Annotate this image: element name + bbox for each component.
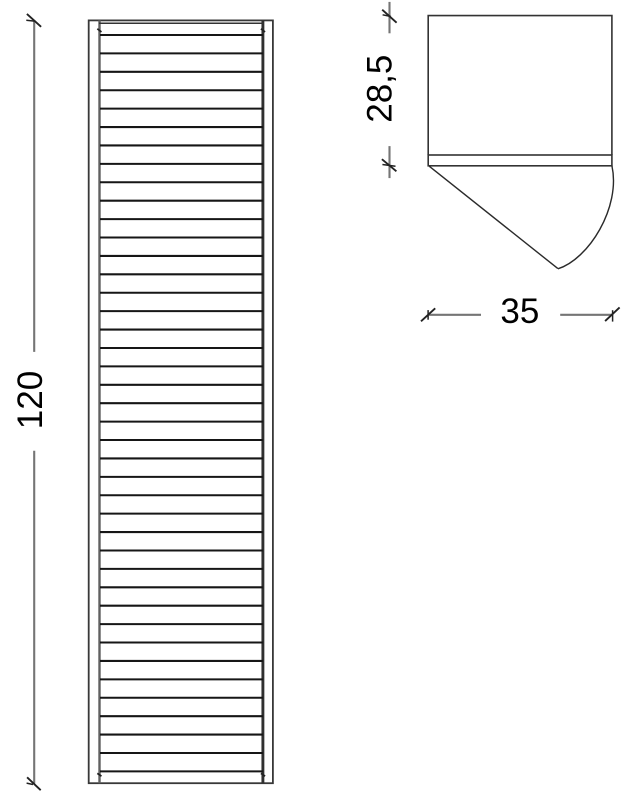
svg-text:120: 120 [11,371,50,429]
svg-text:28,5: 28,5 [360,55,399,123]
svg-text:35: 35 [500,292,539,331]
